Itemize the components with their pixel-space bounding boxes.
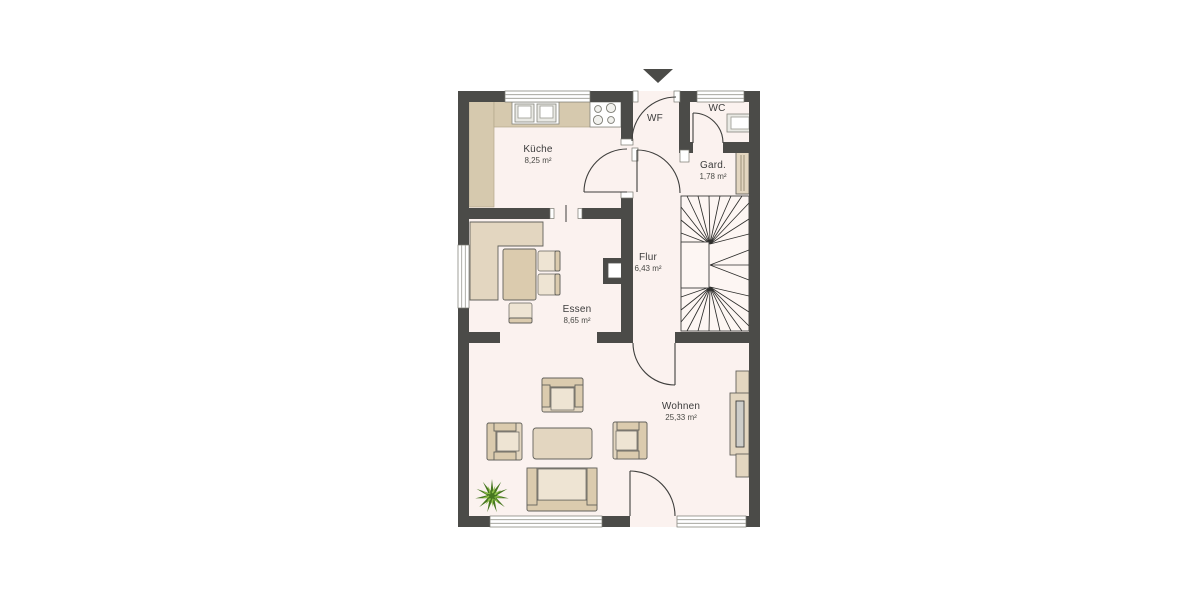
room-name: Wohnen xyxy=(626,401,736,413)
dining-chair xyxy=(538,251,560,271)
room-area: 6,43 m² xyxy=(593,264,703,273)
room-name: WF xyxy=(600,113,710,125)
room-name: Flur xyxy=(593,252,703,264)
window xyxy=(458,245,469,308)
dining-table xyxy=(503,249,536,300)
room-label-essen: Essen 8,65 m² xyxy=(522,304,632,325)
room-label-kueche: Küche 8,25 m² xyxy=(483,144,593,165)
dining-chair xyxy=(538,274,560,295)
room-area: 1,78 m² xyxy=(658,172,768,181)
room-label-flur: Flur 6,43 m² xyxy=(593,252,703,273)
armchair-top xyxy=(542,378,583,412)
room-label-wc: WC xyxy=(662,103,772,115)
room-label-gard: Gard. 1,78 m² xyxy=(658,160,768,181)
coffee-table xyxy=(533,428,592,459)
entrance-arrow-icon xyxy=(643,69,673,83)
room-name: WC xyxy=(662,103,772,115)
window xyxy=(677,516,746,527)
armchair-left xyxy=(487,423,522,460)
room-name: Gard. xyxy=(658,160,768,172)
window xyxy=(490,516,602,527)
room-name: Essen xyxy=(522,304,632,316)
window xyxy=(697,91,744,102)
room-area: 25,33 m² xyxy=(626,413,736,422)
window xyxy=(505,91,590,102)
sofa xyxy=(527,468,597,511)
room-area: 8,25 m² xyxy=(483,156,593,165)
tv-screen xyxy=(736,401,744,447)
room-area: 8,65 m² xyxy=(522,316,632,325)
room-label-wf: WF xyxy=(600,113,710,125)
room-name: Küche xyxy=(483,144,593,156)
armchair-right xyxy=(613,422,647,459)
page-background: Küche 8,25 m² WF WC Gard. 1,78 m² Flur 6… xyxy=(0,0,1200,600)
room-label-wohnen: Wohnen 25,33 m² xyxy=(626,401,736,422)
floor-plan-canvas xyxy=(0,0,1200,600)
kitchen-sink xyxy=(512,102,559,124)
